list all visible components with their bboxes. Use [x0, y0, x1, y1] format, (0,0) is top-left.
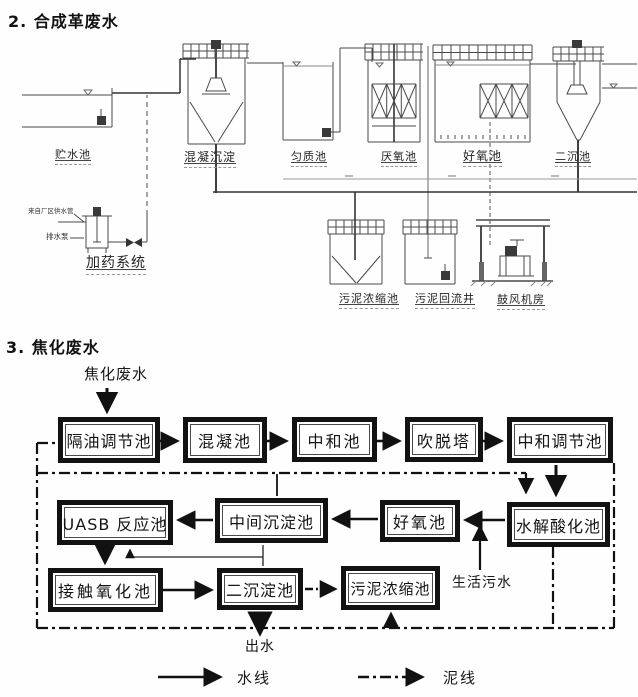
label-anaerobic: 厌氧池 — [381, 151, 417, 167]
box-uasb-reactor: UASB 反应池 — [57, 500, 173, 545]
label-coking-influent: 焦化废水 — [84, 363, 148, 384]
coagulation-sedimentation-tank — [183, 40, 283, 193]
label-sludge-thickener: 污泥浓缩池 — [339, 293, 399, 309]
section-coking-title: 3. 焦化废水 — [6, 334, 100, 358]
label-storage-tank: 贮水池 — [55, 149, 91, 165]
label-coag-sed: 混凝沉淀 — [184, 151, 236, 168]
label-effluent: 出水 — [245, 636, 275, 656]
label-aerobic: 好氧池 — [463, 150, 502, 167]
box-intermediate-sedimentation: 中间沉淀池 — [215, 498, 328, 543]
label-domestic-sewage: 生活污水 — [452, 572, 512, 592]
blower-machine — [498, 240, 534, 276]
feed-pipe — [112, 59, 196, 93]
blower-room — [471, 220, 553, 286]
storage-tank — [22, 88, 112, 127]
page: 2. 合成革废水 贮水池 混凝沉淀 匀质池 厌氧池 好氧池 二沉池 加药系统 污… — [0, 0, 638, 697]
sludge-return-well-tank — [403, 220, 457, 284]
label-drain-pump: 排水泵 — [46, 231, 69, 242]
box-aerobic: 好氧池 — [380, 500, 460, 542]
box-neutralization: 中和池 — [292, 417, 377, 462]
gallery-lines — [213, 176, 637, 192]
box-stripping-tower: 吹脱塔 — [405, 417, 483, 462]
label-blower-room: 鼓风机房 — [497, 294, 545, 310]
legend-water-line: 水线 — [237, 667, 271, 688]
label-sludge-return-well: 污泥回流井 — [415, 293, 475, 309]
box-hydrolysis-acidification: 水解酸化池 — [507, 502, 610, 547]
secondary-clarifier-tank — [530, 40, 637, 192]
aerobic-tank — [433, 45, 532, 246]
section-synthetic-title: 2. 合成革废水 — [8, 8, 119, 32]
legend-sludge-line: 泥线 — [443, 667, 477, 688]
label-plant-water-pipe: 来自厂区供水管 — [28, 205, 74, 215]
box-coagulation: 混凝池 — [183, 417, 267, 463]
box-secondary-sedimentation: 二沉淀池 — [217, 568, 303, 610]
sludge-thickener-tank — [328, 192, 384, 284]
label-homogenization: 匀质池 — [291, 151, 327, 167]
anaerobic-tank — [365, 44, 423, 142]
label-secondary: 二沉池 — [555, 151, 591, 167]
label-dosing-system: 加药系统 — [86, 256, 146, 275]
homogenization-tank — [283, 48, 372, 140]
box-sludge-thickener: 污泥浓缩池 — [341, 566, 440, 610]
box-neutralization-regulation: 中和调节池 — [507, 417, 613, 463]
box-oil-separation-regulation: 隔油调节池 — [58, 417, 160, 463]
box-contact-oxidation: 接触氧化池 — [48, 568, 163, 612]
